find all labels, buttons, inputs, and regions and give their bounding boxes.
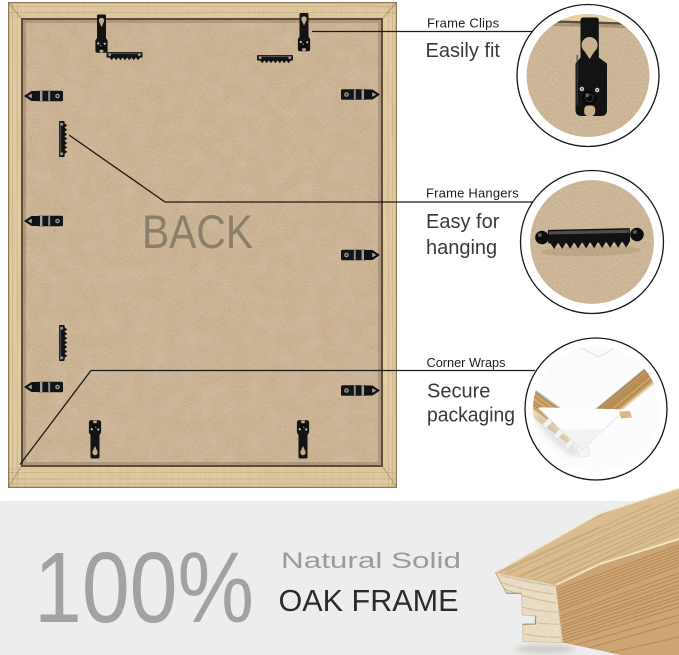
- svg-text:Secure: Secure: [427, 380, 490, 402]
- svg-text:Easy for: Easy for: [426, 211, 500, 233]
- svg-text:Natural Solid: Natural Solid: [281, 548, 461, 573]
- svg-text:OAK FRAME: OAK FRAME: [279, 583, 459, 618]
- svg-text:packaging: packaging: [427, 405, 515, 427]
- svg-text:Frame Hangers: Frame Hangers: [426, 186, 519, 201]
- svg-text:BACK: BACK: [142, 206, 253, 259]
- svg-text:Easily fit: Easily fit: [426, 40, 501, 62]
- svg-text:Corner Wraps: Corner Wraps: [427, 355, 506, 370]
- svg-text:hanging: hanging: [426, 237, 497, 259]
- svg-text:Frame Clips: Frame Clips: [427, 16, 500, 31]
- svg-text:100%: 100%: [34, 532, 254, 644]
